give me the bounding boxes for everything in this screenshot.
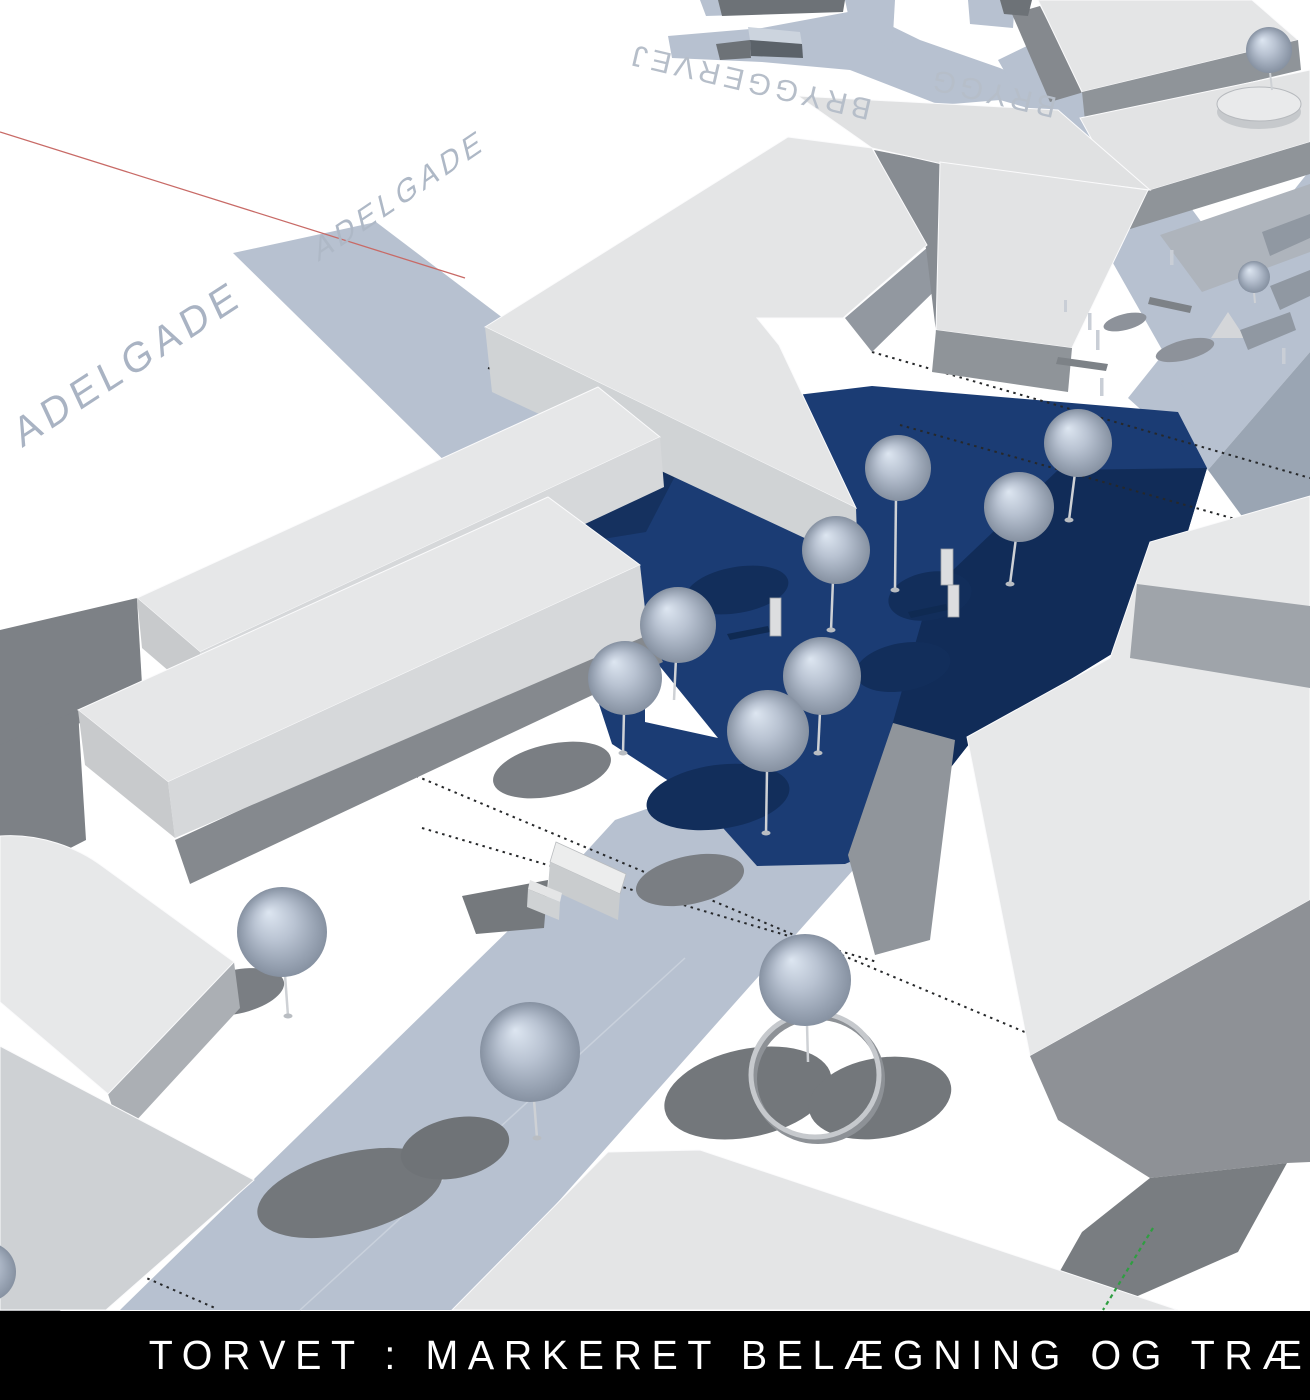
- building-shadow: [718, 0, 845, 16]
- tree-stem: [623, 712, 624, 753]
- building-shadow: [1000, 0, 1032, 16]
- tree-base: [284, 1014, 293, 1019]
- tree-base: [814, 751, 823, 756]
- tree-shadow: [488, 732, 616, 808]
- tree-canopy: [237, 887, 327, 977]
- tree-canopy: [1044, 409, 1112, 477]
- tree-base: [1006, 582, 1015, 587]
- tree-canopy: [865, 435, 931, 501]
- model-viewport: ADELGADEADELGADEBRYGGERVEJBRYGG TORVET :…: [0, 0, 1310, 1400]
- street-label-adelgade-lower: ADELGADE: [7, 270, 249, 456]
- tree-base: [827, 628, 836, 633]
- caption-bar: TORVET : MARKERET BELÆGNING OG TRÆER: [0, 1311, 1310, 1400]
- tree-canopy: [640, 587, 716, 663]
- bollard: [1096, 330, 1100, 350]
- tree-stem: [895, 495, 896, 590]
- tree-base: [891, 588, 900, 593]
- podium-top: [1217, 87, 1301, 121]
- bollard: [1100, 378, 1104, 396]
- tree-canopy: [1238, 261, 1270, 293]
- tree-stem: [285, 975, 288, 1016]
- stele: [770, 598, 781, 636]
- bollard: [1170, 250, 1174, 265]
- bollard: [1088, 313, 1092, 330]
- tree-stem: [766, 770, 767, 833]
- bollard: [1282, 348, 1286, 364]
- tree-canopy: [1246, 27, 1292, 73]
- tree-stem: [1254, 292, 1255, 303]
- tree-canopy: [480, 1002, 580, 1102]
- stele: [941, 549, 953, 585]
- stele: [948, 585, 959, 617]
- tree-base: [619, 751, 628, 756]
- tree-base: [762, 831, 771, 836]
- tree-canopy: [802, 516, 870, 584]
- tree-canopy: [984, 472, 1054, 542]
- tree-canopy: [727, 690, 809, 772]
- tree-base: [1065, 518, 1074, 523]
- tree-base: [533, 1136, 542, 1141]
- tree-stem: [807, 1024, 808, 1062]
- bollard: [1064, 300, 1067, 312]
- tree-canopy: [588, 641, 662, 715]
- caption-text: TORVET : MARKERET BELÆGNING OG TRÆER: [0, 1332, 1310, 1379]
- tree-canopy: [759, 934, 851, 1026]
- 3d-model-scene: ADELGADEADELGADEBRYGGERVEJBRYGG: [0, 0, 1310, 1311]
